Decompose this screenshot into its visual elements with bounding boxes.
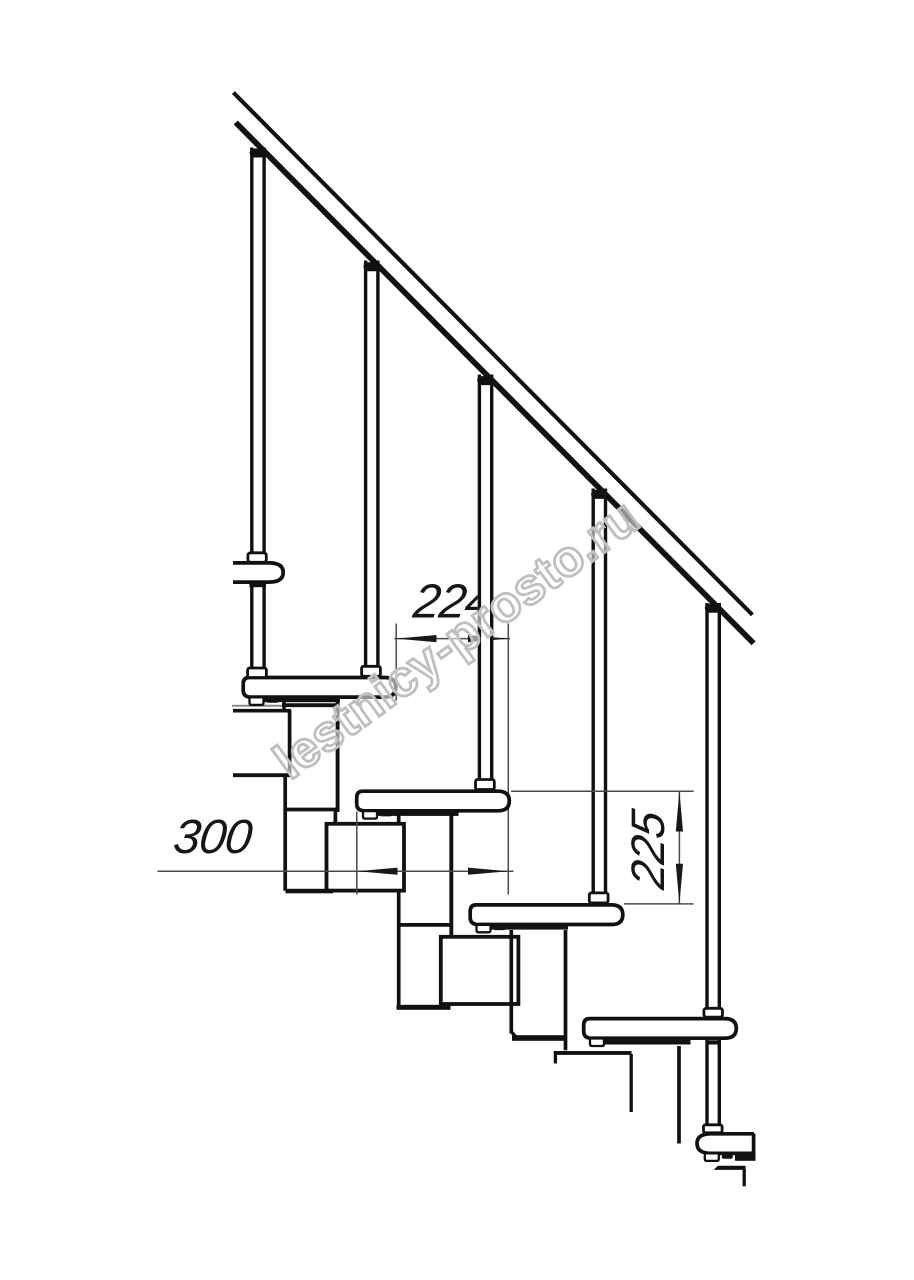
svg-text:300: 300 <box>171 811 256 864</box>
svg-text:225: 225 <box>621 805 674 894</box>
